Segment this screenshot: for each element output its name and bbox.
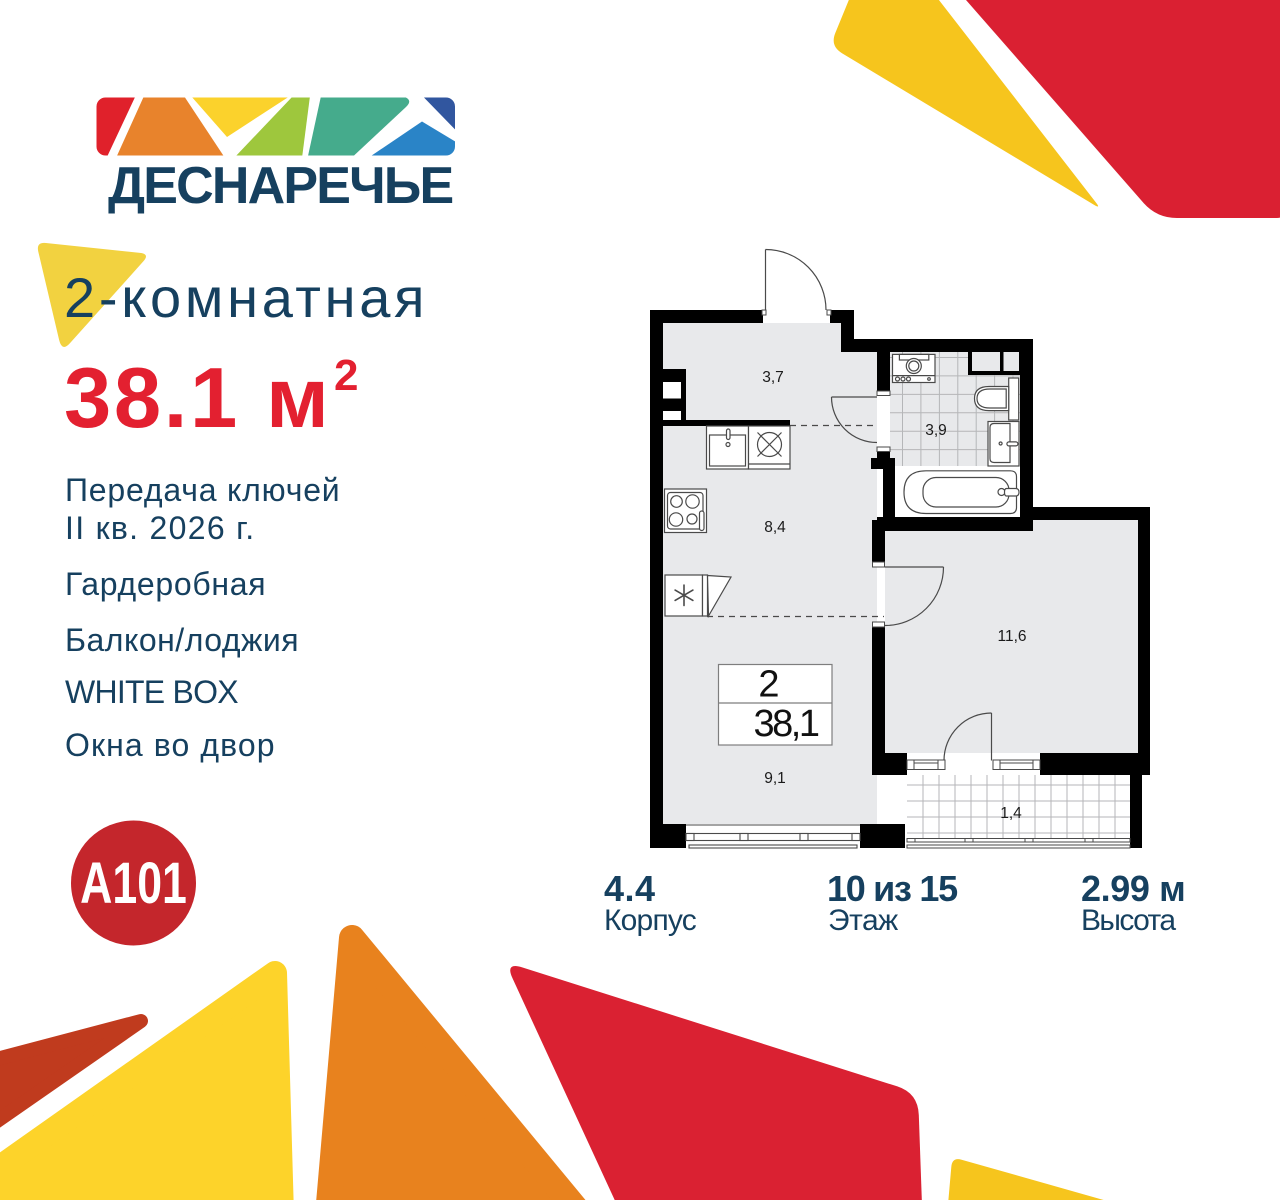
- svg-text:1,4: 1,4: [1000, 805, 1022, 822]
- svg-text:9,1: 9,1: [764, 770, 786, 787]
- svg-text:2: 2: [758, 664, 779, 706]
- svg-text:38,1: 38,1: [754, 703, 819, 745]
- svg-text:3,7: 3,7: [762, 369, 784, 386]
- svg-text:3,9: 3,9: [925, 422, 947, 439]
- svg-text:A101: A101: [80, 850, 187, 915]
- svg-text:11,6: 11,6: [997, 628, 1026, 645]
- svg-text:8,4: 8,4: [764, 519, 786, 536]
